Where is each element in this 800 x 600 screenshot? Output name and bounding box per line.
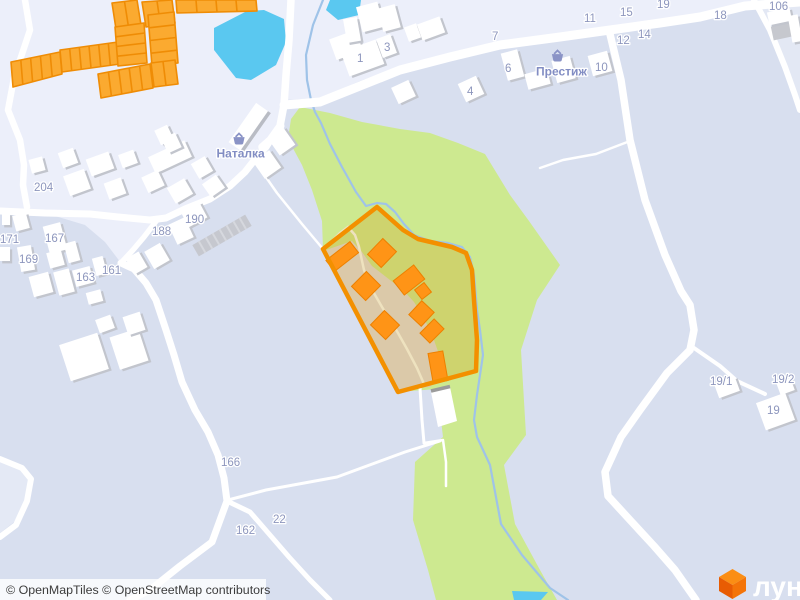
svg-text:12: 12 bbox=[617, 35, 630, 47]
svg-text:19: 19 bbox=[657, 0, 670, 11]
svg-text:19: 19 bbox=[767, 405, 780, 417]
svg-text:169: 169 bbox=[19, 254, 38, 266]
svg-text:171: 171 bbox=[0, 234, 19, 246]
svg-text:19/1: 19/1 bbox=[710, 376, 732, 388]
svg-text:167: 167 bbox=[45, 233, 64, 245]
svg-text:10: 10 bbox=[595, 62, 608, 74]
svg-text:Престиж: Престиж bbox=[536, 65, 587, 79]
svg-text:7: 7 bbox=[492, 31, 498, 43]
svg-text:190: 190 bbox=[185, 214, 204, 226]
svg-text:3: 3 bbox=[384, 42, 390, 54]
svg-text:6: 6 bbox=[505, 63, 511, 75]
svg-text:лун: лун bbox=[753, 571, 800, 600]
svg-text:© OpenMapTiles © OpenStreetMap: © OpenMapTiles © OpenStreetMap contribut… bbox=[6, 583, 270, 597]
svg-text:18: 18 bbox=[714, 10, 727, 22]
svg-text:163: 163 bbox=[76, 272, 95, 284]
svg-text:11: 11 bbox=[584, 13, 596, 25]
svg-text:106: 106 bbox=[769, 1, 788, 13]
svg-text:Наталка: Наталка bbox=[217, 147, 266, 161]
svg-text:161: 161 bbox=[102, 265, 121, 277]
svg-text:1: 1 bbox=[357, 53, 363, 65]
svg-text:188: 188 bbox=[152, 226, 171, 238]
svg-text:19/2: 19/2 bbox=[772, 374, 794, 386]
svg-text:15: 15 bbox=[620, 7, 633, 19]
svg-text:204: 204 bbox=[34, 182, 54, 194]
svg-text:166: 166 bbox=[221, 457, 240, 469]
svg-text:14: 14 bbox=[638, 29, 651, 41]
svg-text:4: 4 bbox=[467, 86, 474, 98]
svg-text:162: 162 bbox=[236, 525, 255, 537]
svg-text:22: 22 bbox=[273, 514, 286, 526]
